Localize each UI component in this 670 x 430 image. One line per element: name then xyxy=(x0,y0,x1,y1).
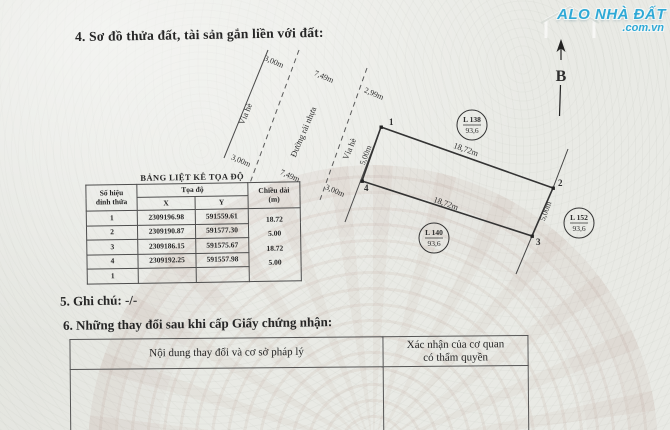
col-header-x: X xyxy=(137,196,195,210)
parcel-badge-L138: L 138 93,6 xyxy=(457,110,487,140)
sidewalk-left-label: Vỉa hè xyxy=(236,101,254,126)
vertex-1-label: 1 xyxy=(389,117,394,127)
col-header-authority-confirm: Xác nhận của cơ quan có thẩm quyền xyxy=(383,335,528,366)
dim-sidewalk-bottom: 3,00m xyxy=(230,153,253,169)
road-edge-right-line xyxy=(320,68,367,200)
vertex-1-marker xyxy=(380,126,383,129)
section-5-title: 5. Ghi chú: -/- xyxy=(60,292,138,309)
length-column: 18.72 5.00 18.72 5.00 xyxy=(248,208,301,282)
dim-sidewalk2-top: 2,99m xyxy=(363,86,386,102)
length-value: 18.72 xyxy=(249,244,300,253)
svg-text:93,6: 93,6 xyxy=(427,239,440,248)
length-value: 5.00 xyxy=(250,258,301,267)
parcel-badge-L152: L 152 93,6 xyxy=(564,208,594,238)
road-edge-left-line xyxy=(250,50,299,183)
col-header-y: Y xyxy=(195,196,248,210)
dim-edge-right: 5,00m xyxy=(538,199,554,222)
dim-sidewalk-top: 3,00m xyxy=(263,54,286,70)
boundary-extension-below-3 xyxy=(516,236,532,274)
dim-sidewalk2-bottom: 3,00m xyxy=(324,183,347,199)
dim-road-top: 7,49m xyxy=(313,69,336,85)
length-value: 18.72 xyxy=(249,215,300,224)
svg-text:93,6: 93,6 xyxy=(572,224,585,233)
svg-text:L 138: L 138 xyxy=(463,115,481,124)
svg-text:93,6: 93,6 xyxy=(465,126,478,135)
col-header-vertex: Số hiệu đỉnh thửa xyxy=(86,184,137,211)
vertex-2-marker xyxy=(552,187,555,190)
col-header-length: Chiều dài (m) xyxy=(248,182,300,209)
coordinate-table-block: BẢNG LIỆT KÊ TỌA ĐỘ Số hiệu đỉnh thửa Tọ… xyxy=(85,170,301,284)
road-label: Đường rải nhựa xyxy=(288,105,318,159)
coordinate-table: Số hiệu đỉnh thửa Tọa độ Chiều dài (m) X… xyxy=(85,181,302,284)
dim-edge-top: 18,72m xyxy=(452,140,480,158)
dim-edge-bottom: 18,72m xyxy=(432,194,460,212)
changes-table-block: Nội dung thay đổi và cơ sở pháp lý Xác n… xyxy=(69,335,528,430)
vertex-3-label: 3 xyxy=(536,237,541,247)
north-label: B xyxy=(556,68,567,85)
parcel-badge-L140: L 140 93,6 xyxy=(419,223,449,253)
changes-table: Nội dung thay đổi và cơ sở pháp lý Xác n… xyxy=(69,335,529,430)
sidewalk-right-label: Vỉa hè xyxy=(340,136,358,161)
col-header-change-content: Nội dung thay đổi và cơ sở pháp lý xyxy=(70,337,383,370)
length-value: 5.00 xyxy=(249,229,300,238)
certificate-page: 4. Sơ đồ thửa đất, tài sản gắn liền với … xyxy=(0,0,670,430)
north-arrow: B xyxy=(556,39,567,116)
vertex-3-marker xyxy=(531,235,534,238)
vertex-2-label: 2 xyxy=(558,178,563,188)
table-row: 1 2309196.98 591559.61 18.72 5.00 18.72 … xyxy=(86,208,300,226)
svg-text:L 152: L 152 xyxy=(570,213,588,222)
table-row xyxy=(70,365,529,430)
svg-text:L 140: L 140 xyxy=(425,228,443,237)
vertex-4-label: 4 xyxy=(364,183,369,193)
